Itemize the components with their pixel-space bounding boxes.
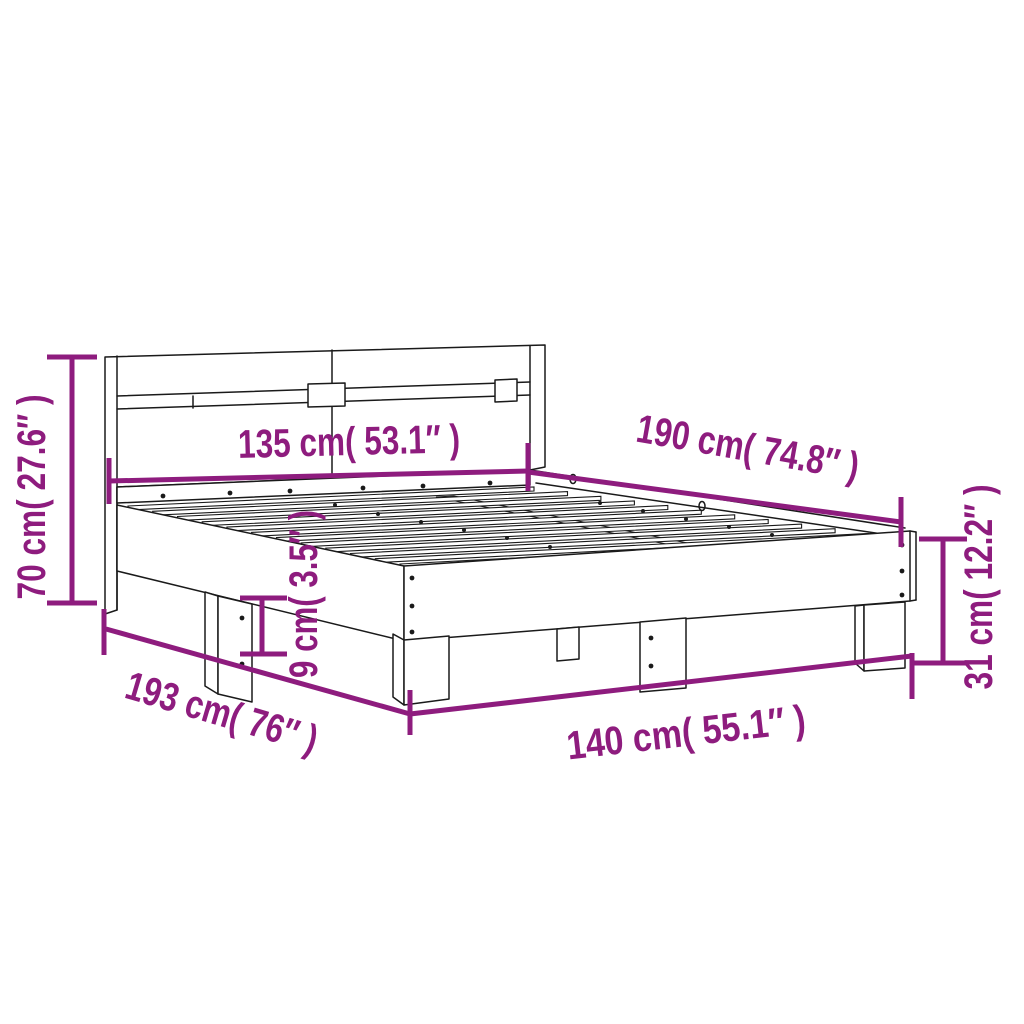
- frame-height-label: 31 cm( 12.2″ ): [957, 485, 1001, 690]
- middle-small-leg: [557, 627, 579, 661]
- frame-width-label: 140 cm( 55.1″ ): [564, 698, 807, 769]
- front-left-leg: [393, 634, 449, 705]
- dimension-headboard-height: [47, 357, 97, 603]
- headboard-connector-block: [495, 379, 517, 402]
- bed-frame-dimension-diagram: 70 cm( 27.6″ ) 135 cm( 53.1″ ) 190 cm( 7…: [0, 0, 1024, 1024]
- mattress-length-label: 190 cm( 74.8″ ): [633, 407, 862, 489]
- headboard-connector-block: [308, 383, 345, 407]
- left-rail-leg: [205, 592, 252, 702]
- rail-hole: [699, 502, 705, 511]
- bed-line-art: [105, 345, 916, 705]
- leg-height-label: 9 cm( 3.5″ ): [282, 510, 326, 678]
- headboard-height-label: 70 cm( 27.6″ ): [10, 395, 54, 600]
- headboard-width-label: 135 cm( 53.1″ ): [237, 417, 460, 467]
- diagram-canvas: 70 cm( 27.6″ ) 135 cm( 53.1″ ) 190 cm( 7…: [0, 0, 1024, 1024]
